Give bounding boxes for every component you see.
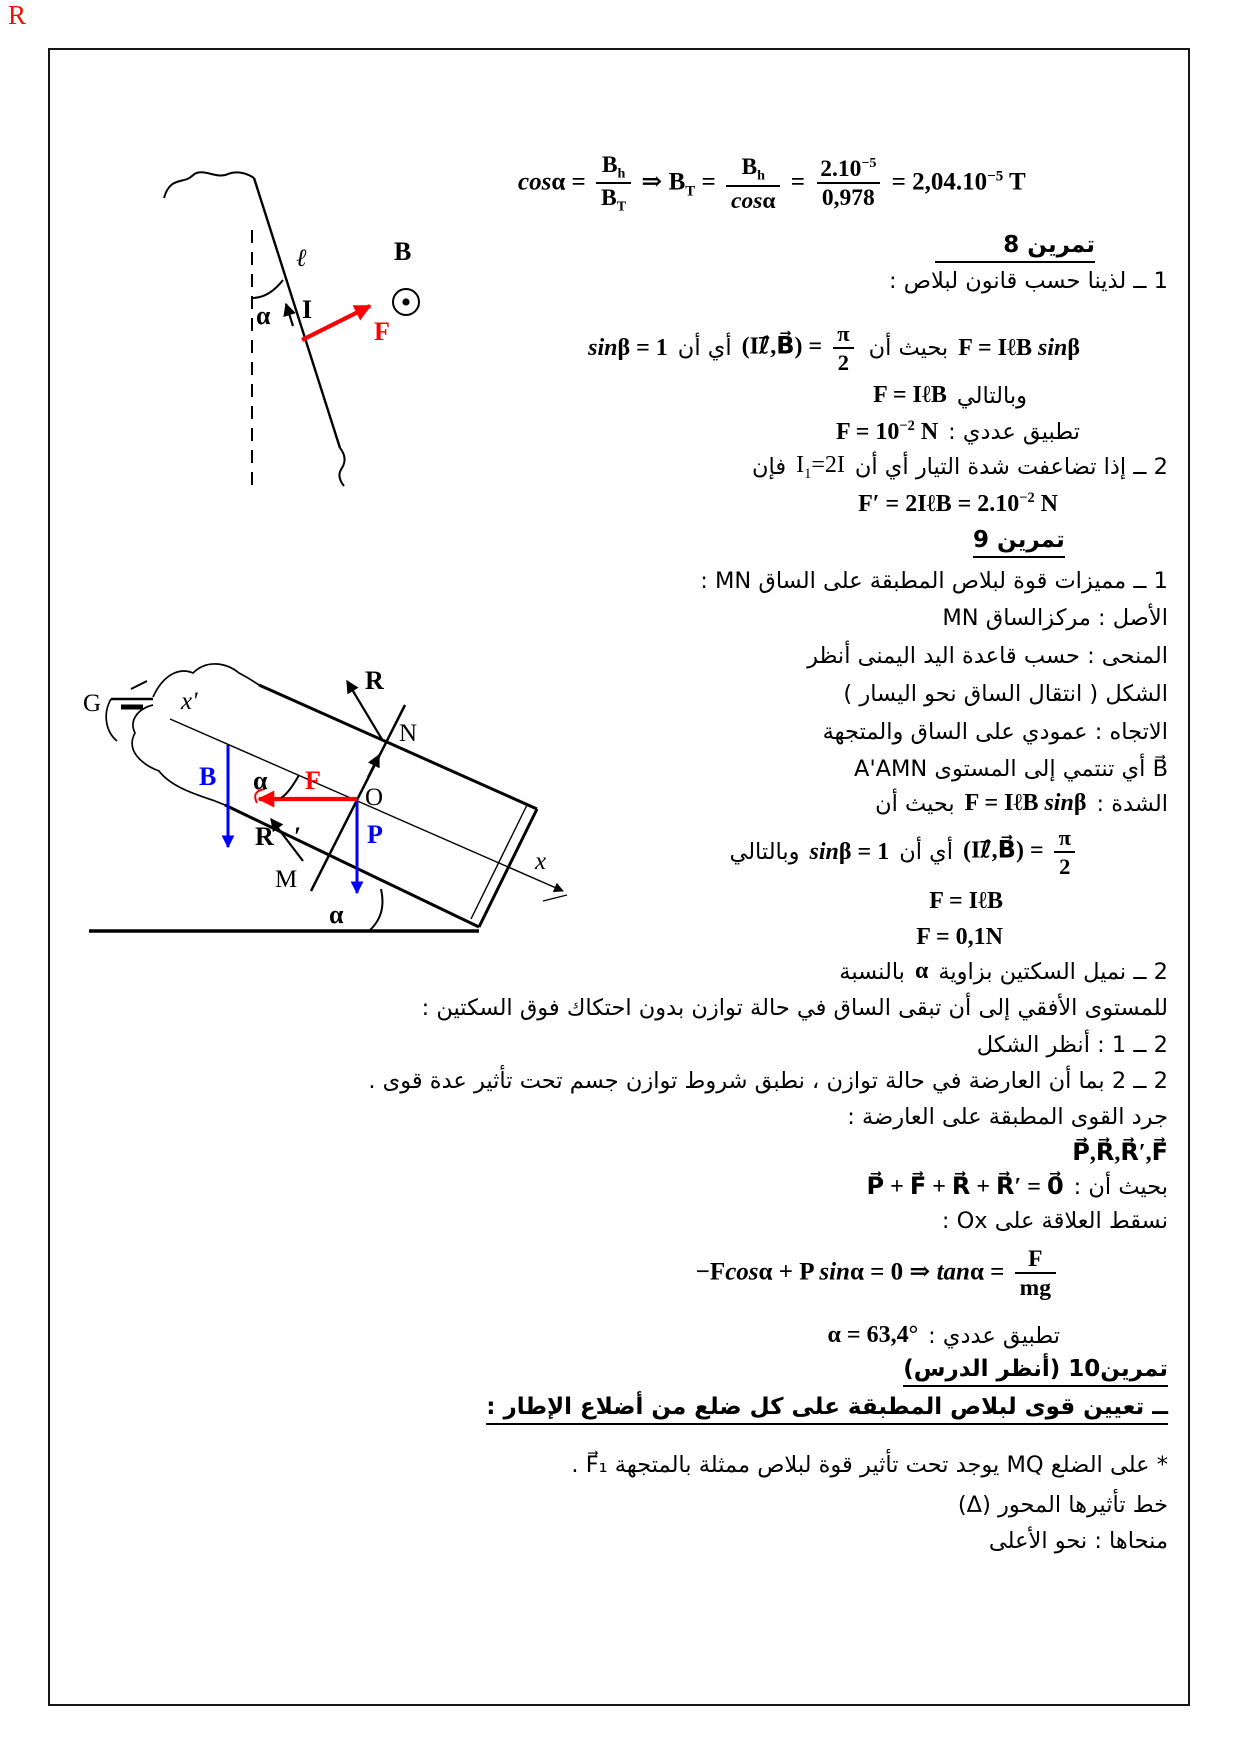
ex8-such-that: بحيث أن (869, 335, 949, 361)
N-label: N (399, 720, 417, 747)
alpha-arc (252, 280, 283, 298)
ex9-l6: B⃗ أي تنتمي إلى المستوى A'AMN (854, 756, 1168, 782)
force-arrow (302, 306, 370, 340)
ex9-f2: F = 0,1N (916, 924, 1003, 951)
circuit-squiggle-top (153, 664, 259, 697)
diagram-rails-incline: G x' x N R⃗ O F⃗ α B⃗ R⃗′ P⃗ M α (75, 593, 580, 945)
battery-tick (131, 681, 147, 689)
ex9-projection-eq: −Fcosα + P sinα = 0 ⇒ tanα = Fmg (696, 1246, 1060, 1302)
ex9-intensity-line: الشدة : F = IℓB sinβ بحيث أن (875, 790, 1168, 817)
x-prime-label: x' (180, 688, 198, 715)
ex9-sum-math: P⃗ + F⃗ + R⃗ + R⃗′ = 0⃗ (867, 1172, 1064, 1201)
ex9-numeric-line: تطبيق عددي : α = 63,4° (828, 1322, 1061, 1349)
ex9-intensity-such: بحيث أن (875, 791, 955, 817)
frame-right-inner (471, 805, 527, 919)
ex9-intensity-math: F = IℓB sinβ (965, 790, 1087, 817)
ex8-sin-math: sinβ = 1 (588, 335, 668, 362)
ex9-forces-label-text: جرد القوى المطبقة على العارضة : (847, 1104, 1168, 1130)
ex8-ie: أي أن (678, 335, 732, 361)
ex9-q2c: للمستوى الأفقي إلى أن تبقى الساق في حالة… (422, 995, 1168, 1021)
ex8-q2-result: F′ = 2IℓB = 2.10−2 N (858, 490, 1058, 518)
ex9-sin-math: sinβ = 1 (810, 839, 890, 866)
ex9-angle-line: (Iℓ⃗,B⃗) = π2 أي أن sinβ = 1 وبالتالي (729, 820, 1080, 884)
ex9-forces-list: P⃗,R⃗,R⃗′,F⃗ (1072, 1138, 1168, 1167)
current-label: I (302, 295, 312, 324)
weight-label: P⃗ (367, 820, 403, 849)
exercise9-title: تمرين 9 (973, 527, 1065, 558)
document-page: { "page": { "corner_mark": "R" }, "color… (0, 0, 1240, 1754)
ex9-q21-text: 2 ــ 1 : أنظر الشكل (977, 1032, 1168, 1058)
frame-right-end (479, 809, 537, 927)
ex9-hence: وبالتالي (729, 839, 799, 865)
ex8-hence: وبالتالي (957, 383, 1027, 409)
ex9-q2-a: 2 ــ نميل السكتين بزاوية (938, 959, 1168, 985)
x-axis-tick (543, 895, 567, 901)
ex9-q2-line: 2 ــ نميل السكتين بزاوية α بالنسبة (839, 958, 1168, 985)
ex8-intro-line: 1 ــ لذينا حسب قانون لبلاص : (889, 268, 1168, 294)
ex9-q22-text: 2 ــ 2 بما أن العارضة في حالة توازن ، نط… (368, 1068, 1168, 1094)
ex8-law-math: F = IℓB sinβ (958, 335, 1080, 362)
upper-rail (259, 685, 537, 809)
ex9-l3-text: المنحى : حسب قاعدة اليد اليمنى أنظر (807, 643, 1168, 669)
ex9-numeric-label: تطبيق عددي : (928, 1323, 1060, 1349)
current-arrow (286, 304, 293, 326)
ex9-l5-text: الاتجاه : عمودي على الساق والمتجهة (823, 719, 1168, 745)
ex9-q22: 2 ــ 2 بما أن العارضة في حالة توازن ، نط… (368, 1068, 1168, 1094)
O-label: O (365, 784, 383, 811)
ex9-sum-label: بحيث أن : (1074, 1174, 1168, 1200)
ex8-angle-math: (Iℓ⃗,B⃗) = π2 (742, 321, 859, 375)
field-label: B⃗ (394, 237, 432, 266)
rod-current-arrow (368, 755, 379, 777)
ex8-result-math: F = IℓB (873, 382, 947, 409)
circuit-squiggle-left (106, 699, 117, 741)
ex8-q2-b: فإن (752, 454, 786, 480)
ex10-l3-text: منحاها : نحو الأعلى (989, 1528, 1168, 1554)
ex8-result-line: وبالتالي F = IℓB (873, 382, 1027, 409)
ex9-l1-text: 1 ــ مميزات قوة لبلاص المطبقة على الساق … (700, 568, 1168, 594)
exercise8-title: تمرين 8 (935, 232, 1095, 263)
length-label: ℓ (296, 245, 307, 272)
ex10-l2: خط تأثيرها المحور (Δ) (958, 1492, 1168, 1518)
ex9-q21: 2 ــ 1 : أنظر الشكل (977, 1032, 1168, 1058)
field-label: B⃗ (199, 762, 237, 791)
ex9-angle-math: (Iℓ⃗,B⃗) = π2 (963, 825, 1080, 879)
diagram-wire-in-field: α ℓ I B⃗ F⃗ (150, 146, 460, 496)
equation-bt: cosα = BhBT ⇒ BT = Bhcosα = 2.10−50,978 … (518, 152, 1026, 216)
M-label: M (275, 866, 297, 893)
ex9-q2-b: بالنسبة (839, 959, 905, 985)
reaction2-label: R⃗′ (255, 822, 301, 851)
wire-bottom-squiggle (339, 448, 344, 486)
ex8-numeric-label: تطبيق عددي : (948, 419, 1080, 445)
alpha-bottom-label: α (329, 900, 344, 929)
alpha-label: α (256, 301, 271, 330)
x-label: x (534, 848, 546, 875)
ex9-q2-alpha: α (915, 958, 928, 985)
reaction-label: R⃗ (365, 666, 404, 695)
ex9-forces-label: جرد القوى المطبقة على العارضة : (847, 1104, 1168, 1130)
ex8-q2-line: 2 ــ إذا تضاعفت شدة التيار أي أن I1=2I ف… (752, 452, 1168, 483)
ex9-l6-text: B⃗ أي تنتمي إلى المستوى A'AMN (854, 756, 1168, 782)
exercise10-subtitle: ــ تعيين قوى لبلاص المطبقة على كل ضلع من… (486, 1394, 1168, 1425)
ex8-numeric-math: F = 10−2 N (836, 418, 938, 446)
corner-mark: R (8, 0, 26, 31)
ex8-q2-a: 2 ــ إذا تضاعفت شدة التيار أي أن (855, 454, 1168, 480)
ex10-l3: منحاها : نحو الأعلى (989, 1528, 1168, 1554)
ex9-forces-math: P⃗,R⃗,R⃗′,F⃗ (1072, 1138, 1168, 1167)
ex9-project-text: نسقط العلاقة على Ox : (942, 1208, 1168, 1234)
exercise10-title: تمرين10 (أنظر الدرس) (903, 1356, 1168, 1387)
ex8-intro-text: 1 ــ لذينا حسب قانون لبلاص : (889, 268, 1168, 294)
ex9-l3: المنحى : حسب قاعدة اليد اليمنى أنظر (807, 643, 1168, 669)
ex9-l5: الاتجاه : عمودي على الساق والمتجهة (823, 719, 1168, 745)
alpha-top-arc (281, 775, 299, 798)
ex9-numeric-math: α = 63,4° (828, 1322, 919, 1349)
ex9-l1: 1 ــ مميزات قوة لبلاص المطبقة على الساق … (700, 568, 1168, 594)
ex9-l2: الأصل : مركزالساق MN (942, 605, 1168, 631)
ex10-l1-text: * على الضلع MQ يوجد تحت تأثير قوة لبلاص … (571, 1452, 1168, 1478)
ex8-numeric-line: تطبيق عددي : F = 10−2 N (836, 418, 1080, 446)
ex9-project: نسقط العلاقة على Ox : (942, 1208, 1168, 1234)
force-label: F⃗ (305, 766, 341, 795)
ex10-l1: * على الضلع MQ يوجد تحت تأثير قوة لبلاص … (571, 1452, 1168, 1478)
field-dot (402, 298, 409, 305)
ex9-sum-line: بحيث أن : P⃗ + F⃗ + R⃗ + R⃗′ = 0⃗ (867, 1172, 1168, 1201)
force-label: F⃗ (374, 317, 410, 346)
ex9-l4-text: الشكل ( انتقال الساق نحو اليسار ) (843, 681, 1168, 707)
ex8-q2-math: I1=2I (796, 452, 845, 483)
ex9-angle-ie: أي أن (899, 839, 953, 865)
ex9-intensity-label: الشدة : (1096, 791, 1168, 817)
generator-label: G (83, 690, 101, 717)
ex9-l2-text: الأصل : مركزالساق MN (942, 605, 1168, 631)
alpha-top-label: α (253, 766, 268, 795)
wire-top-squiggle (164, 172, 254, 198)
ex10-l2-text: خط تأثيرها المحور (Δ) (958, 1492, 1168, 1518)
ex8-law-line: F = IℓB sinβ بحيث أن (Iℓ⃗,B⃗) = π2 أي أن… (588, 316, 1080, 380)
ex9-l4: الشكل ( انتقال الساق نحو اليسار ) (843, 681, 1168, 707)
ex9-f1: F = IℓB (929, 888, 1003, 915)
alpha-bottom-arc (369, 889, 383, 931)
ex9-q2c-text: للمستوى الأفقي إلى أن تبقى الساق في حالة… (422, 995, 1168, 1021)
